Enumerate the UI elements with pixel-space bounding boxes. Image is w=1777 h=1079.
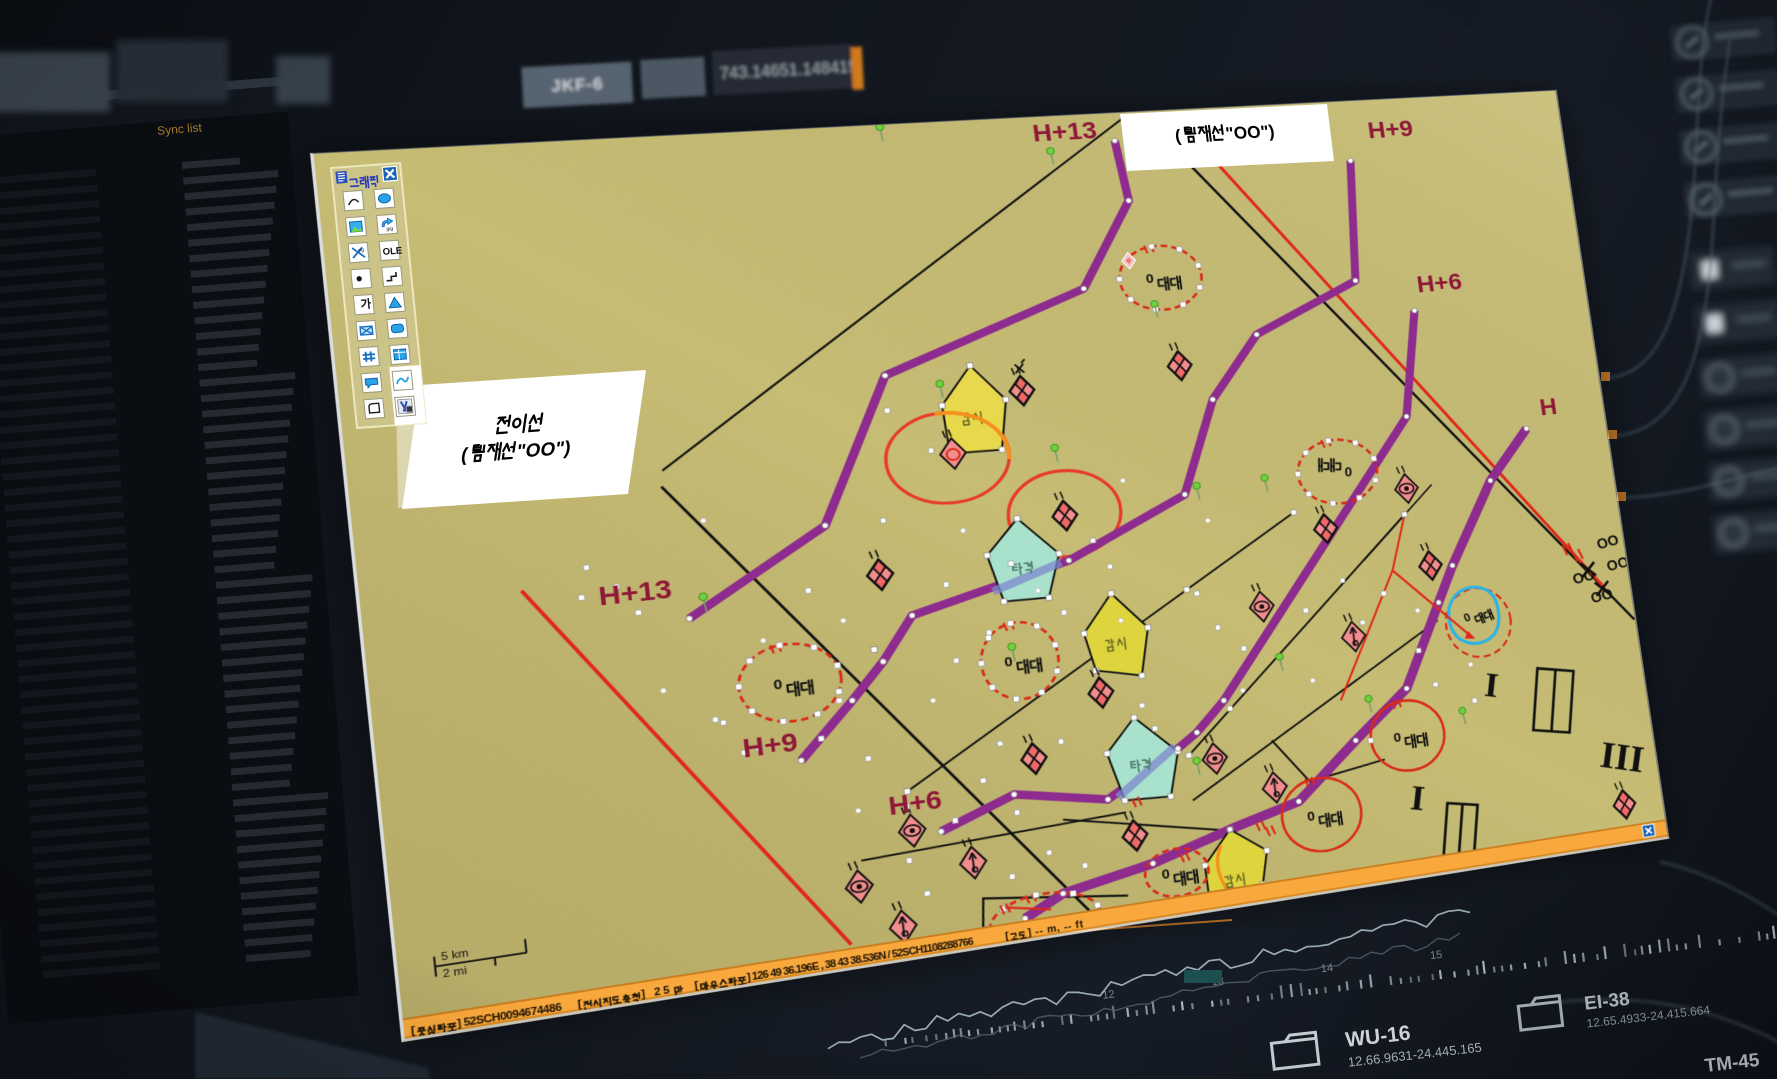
svg-text:pg: pg <box>358 247 364 253</box>
svg-text:"OO"): "OO") <box>515 438 572 462</box>
svg-text:OLE: OLE <box>382 245 403 257</box>
svg-text:jpg: jpg <box>385 226 393 233</box>
svg-text:가: 가 <box>360 297 372 312</box>
svg-text:"OO"): "OO") <box>1224 121 1275 143</box>
